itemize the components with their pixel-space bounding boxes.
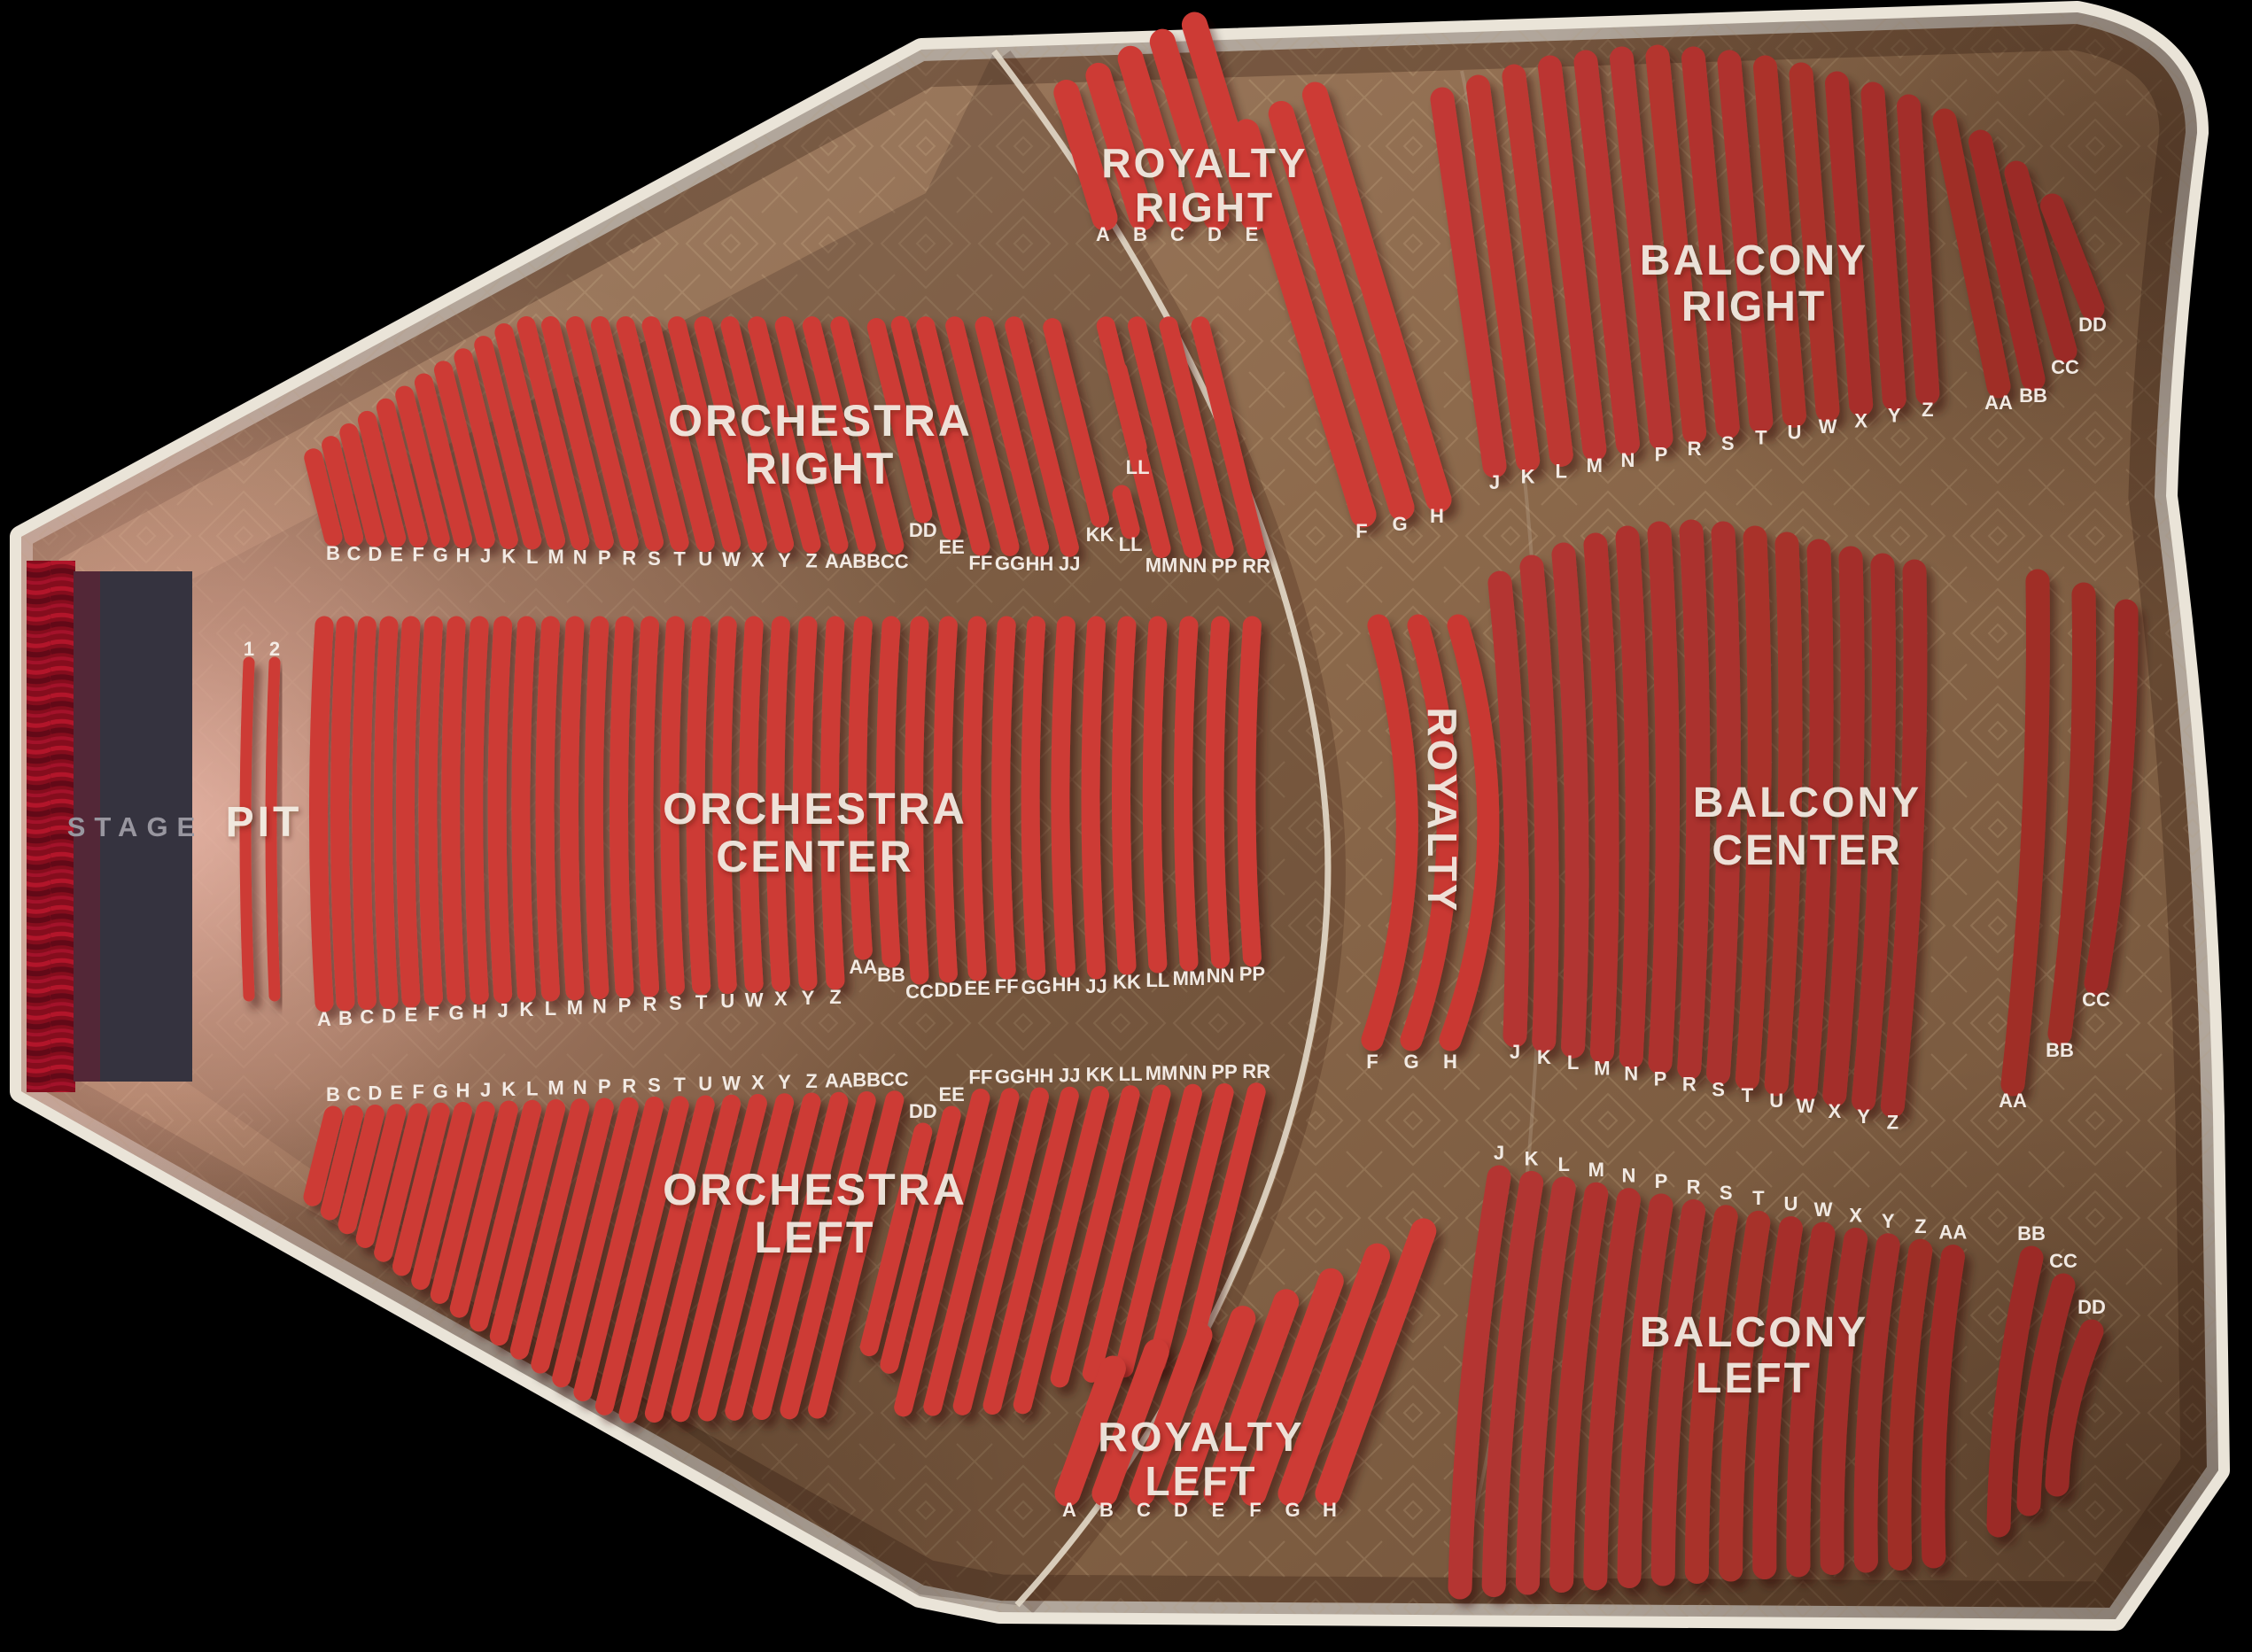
row-letter: N <box>1624 1062 1638 1084</box>
row-letter: X <box>1854 410 1868 432</box>
row-letter: RR <box>1242 555 1270 578</box>
seat-row[interactable] <box>1215 625 1221 959</box>
row-letter: U <box>698 548 712 570</box>
seat-row[interactable] <box>1091 625 1097 970</box>
row-letter: K <box>1525 1147 1539 1169</box>
orchestra-left-label-line2: LEFT <box>755 1213 876 1262</box>
row-letter: B <box>338 1007 353 1029</box>
row-letter: L <box>1557 1153 1569 1175</box>
row-letter: CC <box>2049 1250 2077 1272</box>
row-letter: F <box>428 1003 439 1025</box>
seat-row[interactable] <box>1627 538 1637 1057</box>
row-letter: LL <box>1119 533 1143 555</box>
seat-row[interactable] <box>594 625 600 990</box>
row-letter: W <box>1797 1095 1815 1117</box>
row-letter: DD <box>909 1100 937 1122</box>
row-letter: P <box>1654 1068 1667 1090</box>
row-letter: G <box>1285 1499 1300 1521</box>
row-letter: 2 <box>269 638 280 660</box>
row-letter: DD <box>934 979 962 1001</box>
row-letter: N <box>593 996 607 1018</box>
row-letter: C <box>347 542 361 564</box>
row-letter: LL <box>1126 456 1150 478</box>
row-letter: D <box>368 1082 382 1105</box>
row-letter: AA <box>1939 1222 1968 1244</box>
row-letter: MM <box>1145 554 1178 576</box>
row-letter: W <box>745 989 764 1011</box>
row-letter: P <box>598 1075 611 1097</box>
stage-label: STAGE <box>67 811 205 842</box>
row-letter: A <box>317 1008 331 1030</box>
row-letter: X <box>1849 1204 1862 1226</box>
row-letter: Z <box>1922 399 1933 421</box>
row-letter: A <box>1096 223 1110 245</box>
row-letter: R <box>643 993 657 1015</box>
stage-area: STAGE <box>27 561 204 1092</box>
row-letter: R <box>622 547 636 569</box>
row-letter: H <box>456 1080 470 1102</box>
row-letter: B <box>326 1083 340 1105</box>
row-letter: Y <box>1888 404 1901 426</box>
orchestra-right-label-line1: ORCHESTRA <box>668 396 973 446</box>
row-letter: AA <box>825 550 853 572</box>
row-letter: BB <box>877 964 905 986</box>
row-letter: PP <box>1211 555 1237 577</box>
row-letter: S <box>669 992 682 1014</box>
row-letter: AA <box>849 956 877 978</box>
row-letter: N <box>573 1076 587 1098</box>
row-letter: Y <box>1857 1105 1870 1128</box>
seat-row[interactable] <box>1596 545 1607 1051</box>
row-letter: X <box>1828 1100 1841 1122</box>
row-letter: Y <box>802 987 815 1009</box>
row-letter: E <box>390 543 403 565</box>
row-letter: PP <box>1239 963 1265 985</box>
row-letter: HH <box>1026 553 1054 575</box>
row-letter: S <box>1712 1079 1725 1101</box>
seat-row[interactable] <box>1152 625 1158 964</box>
row-letter: G <box>433 544 448 566</box>
row-letter: T <box>1752 1187 1765 1209</box>
seat-row[interactable] <box>1121 625 1127 966</box>
seat-row[interactable] <box>383 625 389 999</box>
row-letter: K <box>1537 1046 1551 1068</box>
orchestra-center-label-line1: ORCHESTRA <box>663 784 967 834</box>
row-letter: N <box>573 547 587 569</box>
row-letter: HH <box>1052 973 1080 996</box>
row-letter: PP <box>1211 1061 1237 1083</box>
row-letter: L <box>1567 1051 1579 1074</box>
row-letter: M <box>1587 454 1603 477</box>
row-letter: BB <box>2046 1039 2074 1061</box>
row-letter: W <box>1819 415 1837 438</box>
row-letter: H <box>456 545 470 567</box>
row-letter: K <box>501 545 516 567</box>
row-letter: R <box>1687 1175 1701 1198</box>
orchestra-right-label-line2: RIGHT <box>745 444 897 493</box>
row-letter: L <box>1555 460 1566 482</box>
row-letter: J <box>1494 1142 1504 1164</box>
row-letter: FF <box>968 1066 992 1089</box>
row-letter: U <box>1769 1090 1783 1112</box>
row-letter: C <box>347 1082 361 1105</box>
row-letter: H <box>1443 1051 1457 1073</box>
row-letter: U <box>1787 421 1801 443</box>
row-letter: G <box>1392 513 1407 535</box>
balcony-center-label-line1: BALCONY <box>1693 779 1922 826</box>
row-letter: KK <box>1113 971 1141 993</box>
royalty-right-label-line2: RIGHT <box>1135 184 1275 230</box>
orchestra-center-label-line2: CENTER <box>716 832 914 881</box>
row-letter: T <box>673 1074 686 1096</box>
row-letter: S <box>1720 1182 1733 1204</box>
row-letter: LL <box>1145 969 1169 991</box>
row-letter: G <box>449 1002 464 1024</box>
royalty-band-label: ROYALTY <box>1419 707 1465 913</box>
row-letter: R <box>622 1074 636 1097</box>
seat-map: STAGE 12ABCDEFGHJKLMNPRSTUWXYZAABBCCDDEE… <box>0 0 2252 1652</box>
row-letter: J <box>1489 471 1500 493</box>
row-letter: P <box>598 547 611 569</box>
row-letter: AA <box>825 1069 853 1091</box>
row-letter: Y <box>1882 1210 1895 1232</box>
row-letter: LL <box>1119 1063 1143 1085</box>
row-letter: D <box>368 543 382 565</box>
row-letter: CC <box>905 981 934 1003</box>
row-letter: NN <box>1178 555 1207 577</box>
row-letter: F <box>412 1081 423 1103</box>
seat-row[interactable] <box>1659 533 1668 1063</box>
row-letter: AA <box>1984 392 2013 414</box>
royalty-left-label-line1: ROYALTY <box>1098 1414 1304 1460</box>
row-letter: K <box>519 998 533 1020</box>
row-letter: CC <box>2082 989 2110 1011</box>
row-letter: G <box>1403 1051 1418 1073</box>
row-letter: BB <box>2019 384 2047 407</box>
row-letter: T <box>1755 427 1767 449</box>
row-letter: CC <box>881 1068 909 1090</box>
seat-row[interactable] <box>521 625 527 993</box>
row-letter: P <box>1655 444 1668 466</box>
seat-row[interactable] <box>319 625 325 1003</box>
seat-row[interactable] <box>545 625 551 992</box>
seat-row[interactable] <box>361 625 368 1001</box>
row-letter: EE <box>938 1083 964 1105</box>
orchestra-left-label-line1: ORCHESTRA <box>663 1165 967 1214</box>
row-letter: JJ <box>1085 975 1107 997</box>
row-letter: AA <box>1999 1090 2027 1112</box>
row-letter: CC <box>2051 356 2079 378</box>
row-letter: DD <box>2077 1296 2106 1318</box>
row-letter: M <box>1594 1057 1610 1079</box>
row-letter: K <box>1521 466 1535 488</box>
row-letter: U <box>720 990 734 1012</box>
row-letter: MM <box>1173 967 1206 989</box>
row-letter: BB <box>852 550 881 572</box>
row-letter: EE <box>964 977 990 999</box>
row-letter: B <box>1099 1499 1114 1521</box>
royalty-right-label-line1: ROYALTY <box>1101 140 1308 186</box>
balcony-right-label-line1: BALCONY <box>1640 237 1868 284</box>
seat-row[interactable] <box>1060 625 1067 968</box>
row-letter: A <box>1062 1499 1076 1521</box>
row-letter: HH <box>1026 1065 1054 1087</box>
balcony-left-label-line2: LEFT <box>1696 1355 1813 1402</box>
seat-row[interactable] <box>618 625 625 989</box>
row-letter: BB <box>2017 1222 2046 1245</box>
row-letter: B <box>326 542 340 564</box>
row-letter: FF <box>995 975 1019 997</box>
row-letter: P <box>618 994 632 1016</box>
row-letter: J <box>480 545 491 567</box>
seat-row[interactable] <box>451 625 457 997</box>
balcony-right-label-line2: RIGHT <box>1681 283 1827 330</box>
row-letter: L <box>526 546 538 568</box>
row-letter: R <box>1688 438 1702 460</box>
row-letter: X <box>751 1072 765 1094</box>
row-letter: G <box>433 1080 448 1102</box>
seat-row[interactable] <box>644 625 650 988</box>
row-letter: M <box>547 546 563 568</box>
row-letter: F <box>1366 1051 1378 1073</box>
row-letter: BB <box>852 1069 881 1091</box>
row-letter: X <box>751 549 765 571</box>
row-letter: L <box>545 997 556 1020</box>
row-letter: Y <box>778 549 791 571</box>
row-letter: Z <box>1914 1215 1926 1237</box>
row-letter: U <box>1783 1193 1798 1215</box>
row-letter: H <box>1430 505 1444 527</box>
row-letter: W <box>1814 1198 1833 1221</box>
row-letter: Z <box>829 986 841 1008</box>
seat-row[interactable] <box>1246 625 1253 958</box>
seat-row[interactable] <box>428 625 434 997</box>
row-letter: MM <box>1145 1062 1178 1084</box>
row-letter: F <box>412 544 423 566</box>
row-letter: 1 <box>244 638 254 660</box>
seat-row[interactable] <box>1183 625 1189 962</box>
row-letter: EE <box>938 536 964 558</box>
row-letter: N <box>1621 1165 1635 1187</box>
row-letter: E <box>390 1082 403 1104</box>
pit-label: PIT <box>226 799 303 846</box>
seat-row[interactable] <box>1030 625 1037 971</box>
row-letter: J <box>497 999 508 1021</box>
seat-row[interactable] <box>474 625 480 996</box>
royalty-left-label-line2: LEFT <box>1145 1458 1258 1504</box>
row-letter: Z <box>805 549 817 571</box>
row-letter: M <box>1588 1159 1604 1181</box>
row-letter: S <box>648 1074 661 1097</box>
row-letter: H <box>472 1001 486 1023</box>
balcony-center-label-line2: CENTER <box>1712 827 1902 874</box>
row-letter: N <box>1620 449 1635 471</box>
row-letter: JJ <box>1059 1064 1080 1086</box>
seat-row[interactable] <box>406 625 412 998</box>
row-letter: KK <box>1086 1064 1114 1086</box>
row-letter: CC <box>881 551 909 573</box>
row-letter: D <box>382 1004 396 1027</box>
row-letter: W <box>722 1072 741 1094</box>
row-letter: KK <box>1086 524 1114 546</box>
row-letter: FF <box>968 552 992 574</box>
seat-row[interactable] <box>972 625 978 972</box>
row-letter: S <box>1721 432 1735 454</box>
row-letter: S <box>648 547 661 570</box>
row-letter: E <box>405 1004 418 1026</box>
row-letter: R <box>1682 1074 1697 1096</box>
seat-row[interactable] <box>339 625 346 1002</box>
row-letter: GG <box>995 1066 1025 1088</box>
row-letter: JJ <box>1059 553 1080 575</box>
balcony-left-label-line1: BALCONY <box>1640 1309 1868 1356</box>
row-letter: T <box>695 991 708 1013</box>
row-letter: K <box>501 1078 516 1100</box>
seat-row[interactable] <box>497 625 503 994</box>
row-letter: Z <box>805 1070 817 1092</box>
row-letter: RR <box>1242 1060 1270 1082</box>
row-letter: P <box>1655 1170 1668 1192</box>
row-letter: DD <box>909 519 937 541</box>
row-letter: L <box>526 1077 538 1099</box>
row-letter: DD <box>2078 314 2107 336</box>
row-letter: X <box>774 988 788 1010</box>
seat-row[interactable] <box>1564 555 1577 1046</box>
row-letter: M <box>547 1077 563 1099</box>
row-letter: GG <box>995 552 1025 574</box>
row-letter: T <box>673 547 686 570</box>
row-letter: W <box>722 548 741 570</box>
row-letter: Z <box>1887 1111 1899 1133</box>
row-letter: F <box>1355 520 1367 542</box>
row-letter: Y <box>778 1071 791 1093</box>
row-letter: NN <box>1207 965 1235 987</box>
row-letter: J <box>1510 1041 1520 1063</box>
row-letter: H <box>1323 1499 1337 1521</box>
seat-row[interactable] <box>1122 494 1130 530</box>
seat-row[interactable] <box>569 625 575 991</box>
row-letter: J <box>480 1079 491 1101</box>
row-letter: C <box>360 1006 374 1028</box>
row-letter: GG <box>1021 976 1051 998</box>
row-letter: NN <box>1178 1061 1207 1083</box>
row-letter: M <box>567 997 583 1019</box>
seat-row[interactable] <box>1001 625 1007 970</box>
row-letter: T <box>1742 1084 1754 1106</box>
row-letter: U <box>698 1073 712 1095</box>
